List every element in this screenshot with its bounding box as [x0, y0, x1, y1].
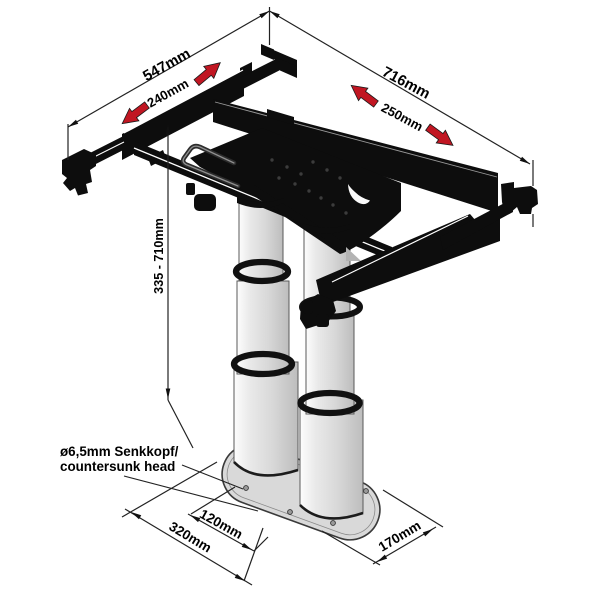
svg-text:countersunk head: countersunk head [60, 459, 175, 474]
svg-text:ø6,5mm Senkkopf/: ø6,5mm Senkkopf/ [60, 444, 179, 459]
svg-text:335 - 710mm: 335 - 710mm [152, 218, 166, 294]
